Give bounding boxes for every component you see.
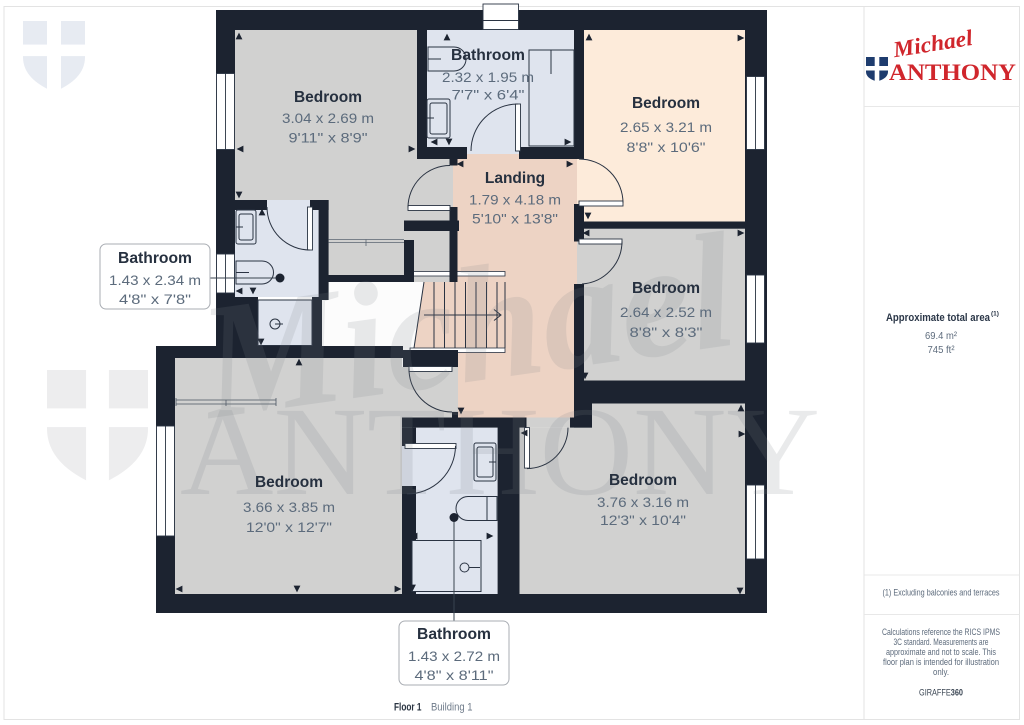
svg-text:Bedroom: Bedroom [609, 472, 677, 489]
svg-text:Bedroom: Bedroom [255, 474, 323, 491]
svg-text:Bedroom: Bedroom [632, 95, 700, 112]
svg-text:745 ft²: 745 ft² [928, 344, 955, 356]
svg-text:(1): (1) [991, 311, 999, 318]
svg-text:ANTHONY: ANTHONY [889, 60, 1016, 86]
svg-text:only.: only. [933, 667, 949, 677]
svg-text:8'8" x 10'6": 8'8" x 10'6" [627, 139, 706, 155]
svg-text:floor plan is intended for ill: floor plan is intended for illustration [883, 657, 999, 667]
svg-text:Building 1: Building 1 [431, 702, 473, 714]
svg-text:3.04 x 2.69 m: 3.04 x 2.69 m [282, 110, 374, 126]
svg-text:1.43 x 2.72 m: 1.43 x 2.72 m [408, 648, 500, 664]
svg-text:Bathroom: Bathroom [417, 626, 491, 643]
svg-text:Bathroom: Bathroom [118, 250, 192, 267]
svg-text:12'3" x 10'4": 12'3" x 10'4" [600, 512, 686, 528]
svg-text:Landing: Landing [485, 170, 545, 187]
svg-text:3C standard. Measurements are: 3C standard. Measurements are [894, 637, 989, 647]
svg-text:1.79 x 4.18 m: 1.79 x 4.18 m [469, 192, 561, 208]
svg-text:69.4 m²: 69.4 m² [925, 330, 957, 342]
svg-text:3.76 x 3.16 m: 3.76 x 3.16 m [597, 494, 689, 510]
svg-text:Floor 1: Floor 1 [394, 702, 422, 714]
svg-text:4'8" x 7'8": 4'8" x 7'8" [119, 291, 191, 307]
svg-text:1.43 x 2.34 m: 1.43 x 2.34 m [109, 272, 201, 288]
svg-text:Bedroom: Bedroom [632, 280, 700, 297]
svg-text:8'8" x 8'3": 8'8" x 8'3" [630, 324, 703, 340]
svg-text:Bathroom: Bathroom [451, 47, 525, 64]
svg-text:(1) Excluding balconies and te: (1) Excluding balconies and terraces [883, 588, 1000, 598]
svg-text:GIRAFFE360: GIRAFFE360 [919, 688, 963, 699]
svg-text:12'0" x 12'7": 12'0" x 12'7" [246, 519, 332, 535]
svg-text:3.66 x 3.85 m: 3.66 x 3.85 m [243, 499, 335, 515]
svg-text:Bedroom: Bedroom [294, 89, 362, 106]
svg-text:4'8" x 8'11": 4'8" x 8'11" [415, 667, 494, 683]
svg-text:Calculations reference the RIC: Calculations reference the RICS IPMS [882, 627, 1000, 637]
svg-text:7'7" x 6'4": 7'7" x 6'4" [452, 87, 525, 103]
svg-text:5'10" x 13'8": 5'10" x 13'8" [472, 211, 558, 227]
svg-text:approximate and not to scale.: approximate and not to scale. This [886, 647, 996, 657]
svg-text:2.32 x 1.95 m: 2.32 x 1.95 m [442, 69, 534, 85]
svg-text:2.65 x 3.21 m: 2.65 x 3.21 m [620, 119, 712, 135]
svg-text:2.64 x 2.52 m: 2.64 x 2.52 m [620, 304, 712, 320]
svg-text:Approximate total area: Approximate total area [886, 312, 991, 324]
svg-text:9'11" x 8'9": 9'11" x 8'9" [289, 130, 368, 146]
